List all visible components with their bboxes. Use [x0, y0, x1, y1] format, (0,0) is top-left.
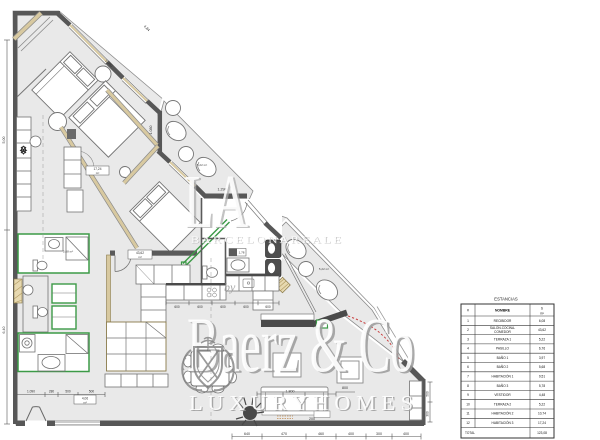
svg-text:5,68: 5,68	[539, 365, 545, 369]
svg-text:5,00: 5,00	[2, 137, 6, 144]
svg-text:1,78: 1,78	[239, 251, 245, 255]
svg-text:4,48: 4,48	[539, 393, 545, 397]
svg-text:5: 5	[467, 356, 469, 360]
svg-text:5,22 m²: 5,22 m²	[319, 267, 329, 271]
svg-text:m²: m²	[96, 171, 100, 175]
svg-text:3,97: 3,97	[539, 356, 545, 360]
svg-text:600: 600	[174, 305, 180, 309]
svg-text:COMEDOR: COMEDOR	[494, 330, 511, 334]
svg-text:5,68 m²: 5,68 m²	[63, 250, 73, 254]
svg-text:BAÑO 1: BAÑO 1	[497, 355, 509, 360]
svg-text:LA: LA	[184, 160, 248, 244]
svg-text:5,22: 5,22	[539, 402, 545, 406]
svg-text:6: 6	[467, 365, 469, 369]
svg-text:5,78: 5,78	[539, 384, 545, 388]
svg-text:HABITACIÓN 3: HABITACIÓN 3	[492, 420, 514, 425]
svg-text:ESTANCIAS: ESTANCIAS	[494, 297, 518, 302]
svg-text:B A R C E L O N A R E A L: B A R C E L O N A R E A L E	[191, 236, 341, 246]
svg-text:1.080: 1.080	[149, 126, 153, 135]
svg-text:4: 4	[467, 347, 469, 351]
svg-text:43,62: 43,62	[538, 328, 546, 332]
svg-text:1.090: 1.090	[27, 390, 35, 394]
svg-text:640: 640	[244, 432, 250, 436]
svg-text:3: 3	[467, 337, 469, 341]
svg-text:300: 300	[426, 411, 430, 417]
svg-text:280: 280	[49, 390, 55, 394]
svg-text:BAÑO 3: BAÑO 3	[497, 383, 509, 388]
svg-text:2: 2	[467, 328, 469, 332]
svg-text:m²: m²	[540, 312, 544, 316]
svg-text:460: 460	[318, 432, 324, 436]
svg-text:m²: m²	[138, 255, 142, 259]
svg-text:HABITACIÓN 1: HABITACIÓN 1	[492, 374, 514, 379]
svg-text:TERRAZA 1: TERRAZA 1	[494, 337, 512, 341]
svg-text:300: 300	[376, 432, 382, 436]
svg-text:500: 500	[426, 391, 430, 397]
svg-text:6,40: 6,40	[2, 327, 6, 334]
svg-text:5,22: 5,22	[539, 337, 545, 341]
svg-text:HABITACIÓN 2: HABITACIÓN 2	[492, 411, 514, 416]
svg-text:TERRAZA 2: TERRAZA 2	[494, 402, 512, 406]
svg-text:11: 11	[466, 412, 470, 416]
svg-text:10: 10	[466, 402, 470, 406]
svg-text:#: #	[467, 309, 469, 313]
svg-text:500: 500	[89, 390, 95, 394]
svg-text:7: 7	[467, 375, 469, 379]
svg-text:8: 8	[467, 384, 469, 388]
svg-text:VESTIDOR: VESTIDOR	[494, 393, 511, 397]
svg-text:RECIBIDOR: RECIBIDOR	[494, 319, 512, 323]
svg-text:400: 400	[403, 432, 409, 436]
svg-text:NOMBRE: NOMBRE	[495, 309, 511, 313]
svg-text:6,76: 6,76	[539, 347, 545, 351]
svg-text:10,74: 10,74	[538, 412, 546, 416]
svg-text:123,08: 123,08	[537, 431, 547, 435]
svg-text:17,24: 17,24	[538, 421, 546, 425]
svg-text:9: 9	[467, 393, 469, 397]
svg-text:m²: m²	[83, 400, 87, 404]
svg-text:L U X U R Y H O M E S: L U X U R Y H O M E S	[189, 391, 413, 415]
svg-text:BAÑO 2: BAÑO 2	[497, 364, 509, 369]
svg-text:Baerz & Co: Baerz & Co	[187, 302, 414, 388]
svg-text:500: 500	[65, 390, 71, 394]
svg-text:200: 200	[309, 417, 315, 421]
svg-text:12: 12	[466, 421, 470, 425]
svg-text:TOTAL: TOTAL	[465, 431, 475, 435]
svg-text:6,08: 6,08	[539, 319, 545, 323]
svg-text:by: by	[224, 280, 236, 294]
svg-text:PASILLO: PASILLO	[496, 347, 510, 351]
svg-text:S: S	[541, 307, 543, 311]
svg-text:470: 470	[281, 432, 287, 436]
svg-text:9,51: 9,51	[539, 375, 545, 379]
svg-text:1: 1	[467, 319, 469, 323]
svg-text:400: 400	[348, 432, 354, 436]
